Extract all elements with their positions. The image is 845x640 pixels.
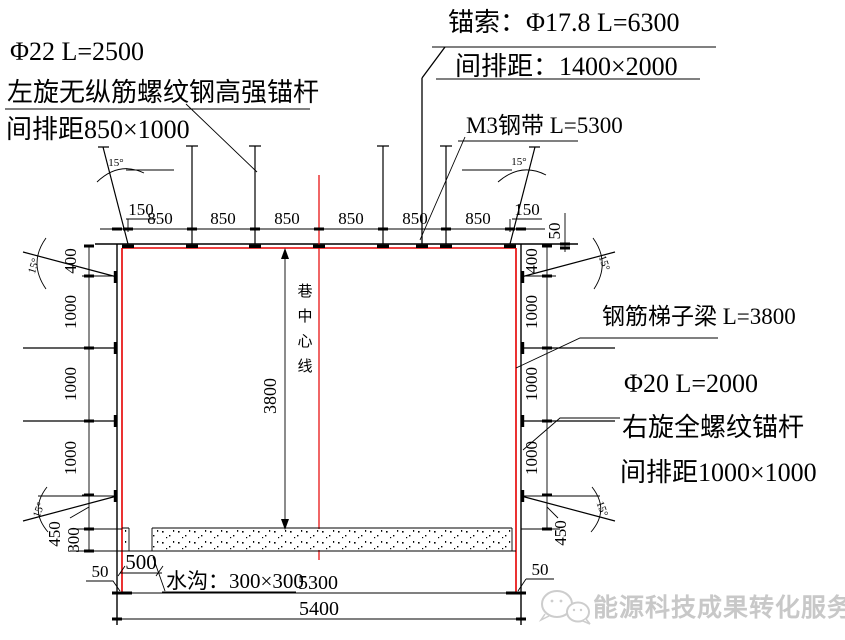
dim-right-1000b: 1000 [522,367,541,401]
dim-ditch-offset: 500 [125,550,157,574]
height-dim-arrow-top [281,248,289,259]
cable-spacing: 间排距：1400×2000 [455,52,678,81]
angle-roof-right: 15° [511,156,526,168]
dim-left-1000c: 1000 [61,441,80,475]
angle-arc-roof-right [462,170,546,182]
angle-roof-left: 15° [108,157,123,169]
left-bolt-spec: Φ22 L=2500 [10,37,144,66]
dim-edge-left: 150 [128,200,154,219]
dim-left-400: 400 [61,248,80,274]
angle-wall-bottomleft: 15° [31,501,48,520]
dim-right-1000a: 1000 [522,295,541,329]
ladder-beam-leader [516,338,718,368]
dim-left-1000a: 1000 [61,295,80,329]
dim-offset-bottomleft: 50 [92,562,109,581]
dim-left-1000b: 1000 [61,367,80,401]
left-bolt-name: 左旋无纵筋螺纹钢高强锚杆 [7,78,319,107]
cable-spec: 锚索：Φ17.8 L=6300 [448,8,680,37]
centerline-char-2: 中 [297,308,312,325]
dim-right-1000c: 1000 [522,441,541,475]
roadway-support-drawing: 850 850 850 850 850 850 150 150 50 400 1… [0,0,845,640]
dim-bay-2: 850 [210,209,236,228]
angle-wall-topright: 15° [596,254,612,272]
right-bolt-name: 右旋全螺纹锚杆 [622,413,804,442]
dim-left-300: 300 [64,527,83,553]
excavation-outline [95,244,578,625]
ditch-left-wall-fill [123,529,128,550]
left-bolt-spacing: 间排距850×1000 [6,115,190,144]
dim-left-450-leader [70,507,89,518]
centerline-char-1: 巷 [297,283,312,300]
dim-bay-5: 850 [402,209,428,228]
dim-left-450: 450 [45,521,64,547]
dim-offset-bottomleft-leader [86,581,120,591]
dim-bay-6: 850 [465,209,491,228]
dim-bay-3: 850 [274,209,300,228]
right-bolt-spec: Φ20 L=2000 [624,369,758,398]
dim-outer-width: 5400 [299,598,339,620]
centerline-char-3: 心 [297,333,312,350]
dim-height-3800: 3800 [260,378,280,414]
centerline-char-4: 线 [297,358,312,375]
left-bolt-leader [186,104,257,172]
dim-inner-width: 5300 [298,572,338,594]
steel-band-spec: M3钢带 L=5300 [466,113,623,138]
dim-bay-4: 850 [338,209,364,228]
wechat-icon [541,591,590,624]
right-bolt-spacing: 间排距1000×1000 [620,458,817,487]
dim-offset-bottomright: 50 [532,560,549,579]
dim-right-450: 450 [551,520,570,546]
drawing-canvas: 850 850 850 850 850 850 150 150 50 400 1… [0,0,845,640]
watermark: 能源科技成果转化服务平台 [541,591,845,624]
watermark-text: 能源科技成果转化服务平台 [593,593,845,622]
ladder-beam-spec: 钢筋梯子梁 L=3800 [602,304,796,329]
dim-right-400: 400 [522,248,541,274]
dim-offset-topright: 50 [545,223,564,240]
angle-wall-topleft: 15° [26,257,42,275]
floor-slab-fill [153,529,511,550]
dim-edge-right: 150 [514,200,540,219]
dim-right-450-leader [547,507,558,518]
ditch-label: 水沟：300×300 [166,569,304,593]
dim-offset-bottomright-leader [518,579,554,591]
